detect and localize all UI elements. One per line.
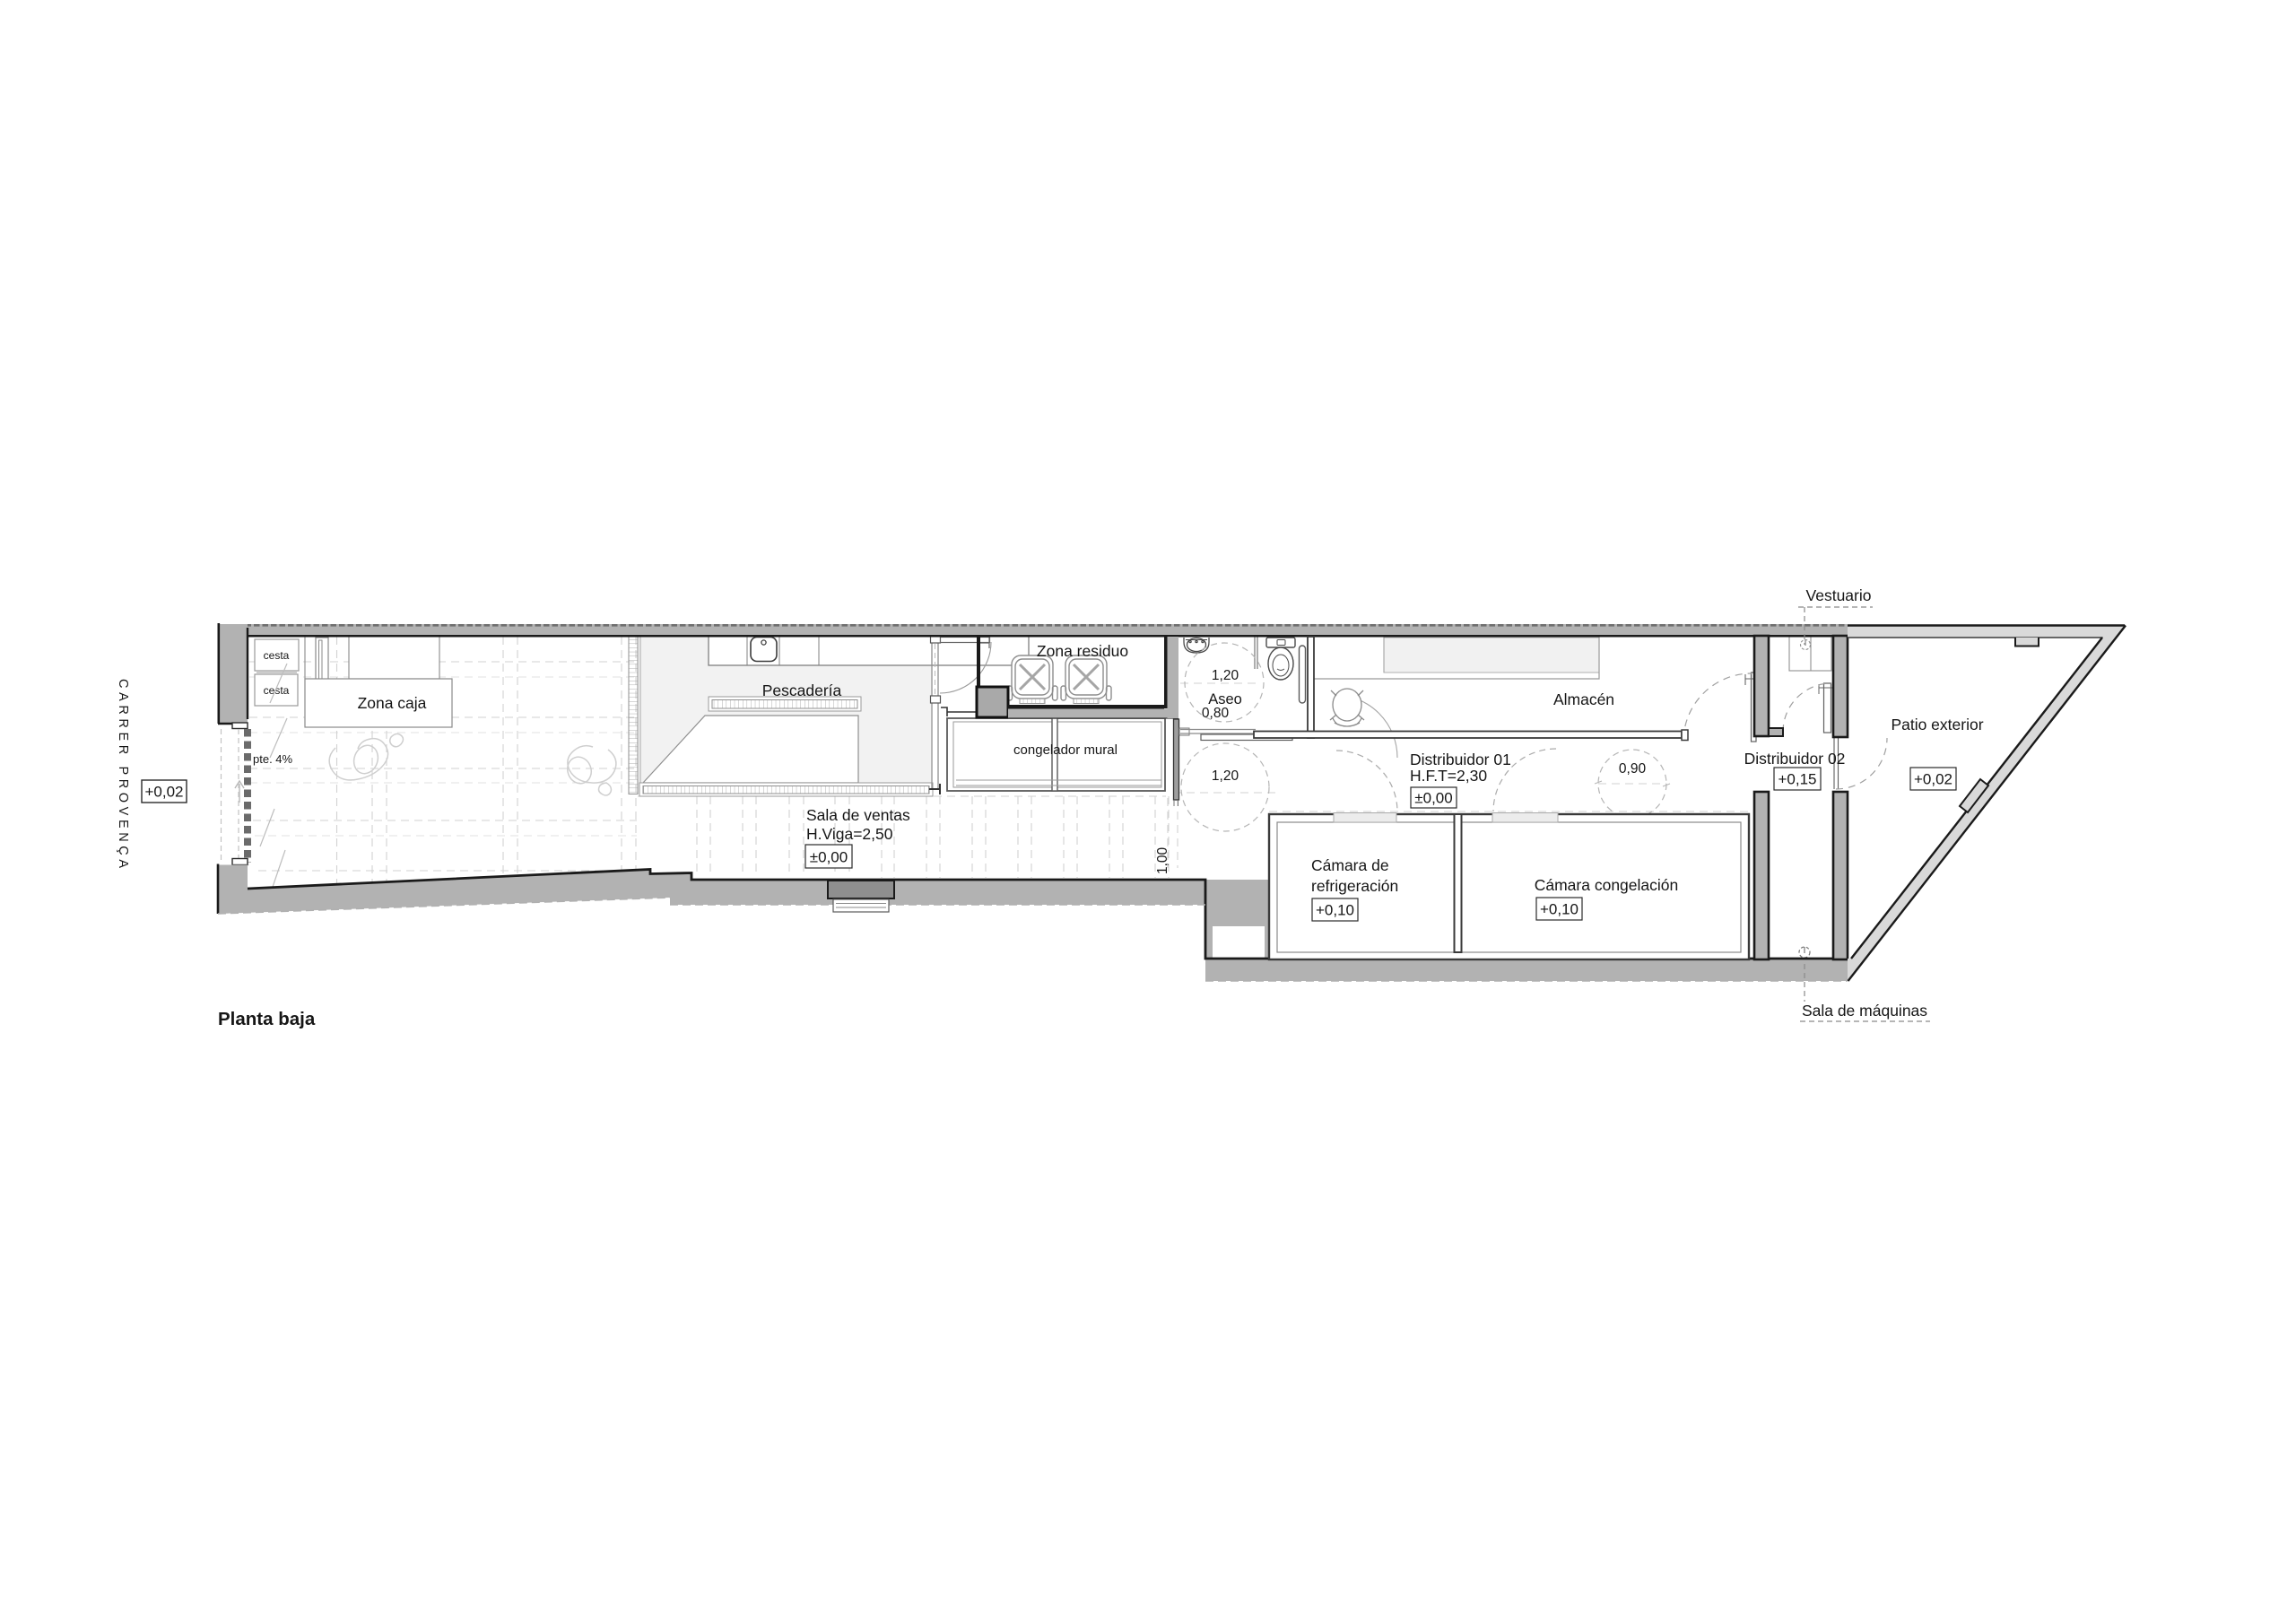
svg-text:0,80: 0,80 [1202, 706, 1230, 721]
svg-text:Patio exterior: Patio exterior [1891, 716, 1983, 733]
svg-text:Almacén: Almacén [1553, 690, 1614, 708]
svg-text:+0,10: +0,10 [1316, 902, 1354, 919]
svg-text:0,90: 0,90 [1619, 761, 1647, 777]
svg-text:±0,00: ±0,00 [1414, 790, 1452, 807]
svg-text:+0,10: +0,10 [1540, 901, 1578, 918]
svg-text:Cámara congelación: Cámara congelación [1535, 876, 1679, 894]
svg-text:Zona caja: Zona caja [358, 694, 427, 712]
svg-text:Zona residuo: Zona residuo [1037, 642, 1128, 660]
svg-text:H.Viga=2,50: H.Viga=2,50 [806, 825, 893, 843]
svg-text:Cámara de: Cámara de [1311, 856, 1389, 874]
svg-text:+0,02: +0,02 [144, 784, 183, 801]
svg-text:H.F.T=2,30: H.F.T=2,30 [1410, 767, 1487, 785]
svg-text:Planta baja: Planta baja [218, 1009, 316, 1029]
svg-text:Distribuidor 01: Distribuidor 01 [1410, 751, 1511, 768]
svg-text:CARRER PROVENÇA: CARRER PROVENÇA [116, 679, 130, 872]
svg-text:+0,02: +0,02 [1914, 771, 1952, 788]
svg-text:congelador mural: congelador mural [1013, 742, 1118, 758]
svg-text:1,20: 1,20 [1212, 668, 1239, 683]
svg-text:±0,00: ±0,00 [810, 849, 848, 866]
svg-text:pte. 4%: pte. 4% [253, 752, 293, 766]
svg-text:Sala de máquinas: Sala de máquinas [1802, 1002, 1927, 1020]
svg-text:refrigeración: refrigeración [1311, 877, 1398, 895]
svg-text:Pescadería: Pescadería [762, 681, 842, 699]
svg-text:Sala de ventas: Sala de ventas [806, 806, 910, 824]
svg-text:Vestuario: Vestuario [1806, 586, 1872, 604]
svg-text:cesta: cesta [264, 649, 290, 662]
svg-text:+0,15: +0,15 [1778, 771, 1816, 788]
svg-text:1,00: 1,00 [1155, 846, 1170, 874]
svg-text:cesta: cesta [264, 684, 290, 697]
svg-text:Distribuidor 02: Distribuidor 02 [1744, 750, 1846, 768]
svg-text:1,20: 1,20 [1212, 768, 1239, 784]
